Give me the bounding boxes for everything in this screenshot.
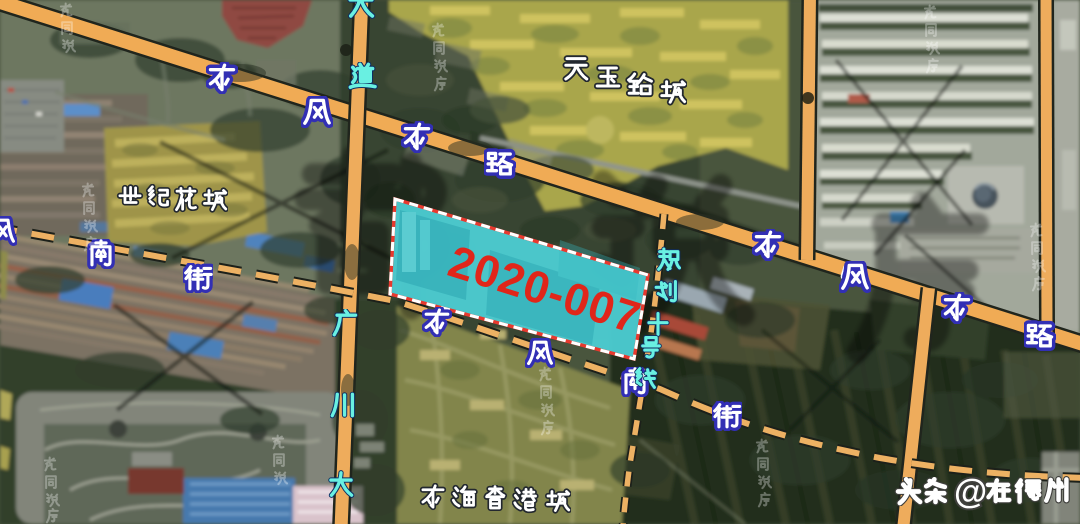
svg-text:@: @ — [954, 473, 987, 511]
